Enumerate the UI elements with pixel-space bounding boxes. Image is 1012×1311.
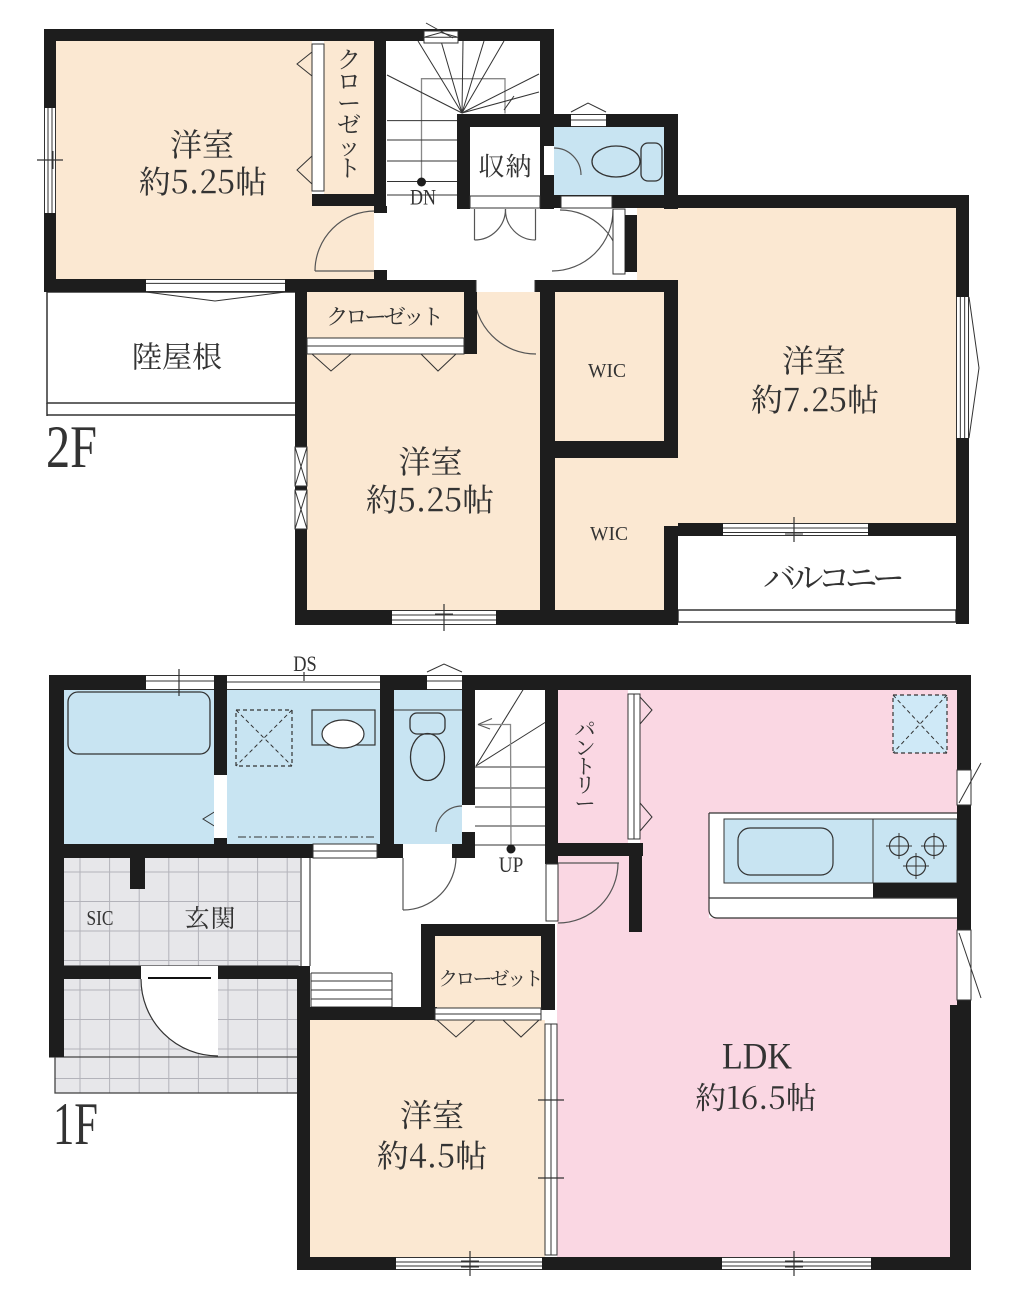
svg-text:2F: 2F <box>46 414 97 480</box>
svg-text:1F: 1F <box>53 1091 98 1157</box>
svg-text:WIC: WIC <box>590 524 628 545</box>
svg-text:SIC: SIC <box>87 906 114 930</box>
svg-text:UP: UP <box>499 852 524 877</box>
svg-text:DN: DN <box>410 185 436 210</box>
svg-text:WIC: WIC <box>588 361 626 382</box>
svg-text:DS: DS <box>293 651 317 676</box>
svg-text:LDK: LDK <box>722 1037 792 1078</box>
